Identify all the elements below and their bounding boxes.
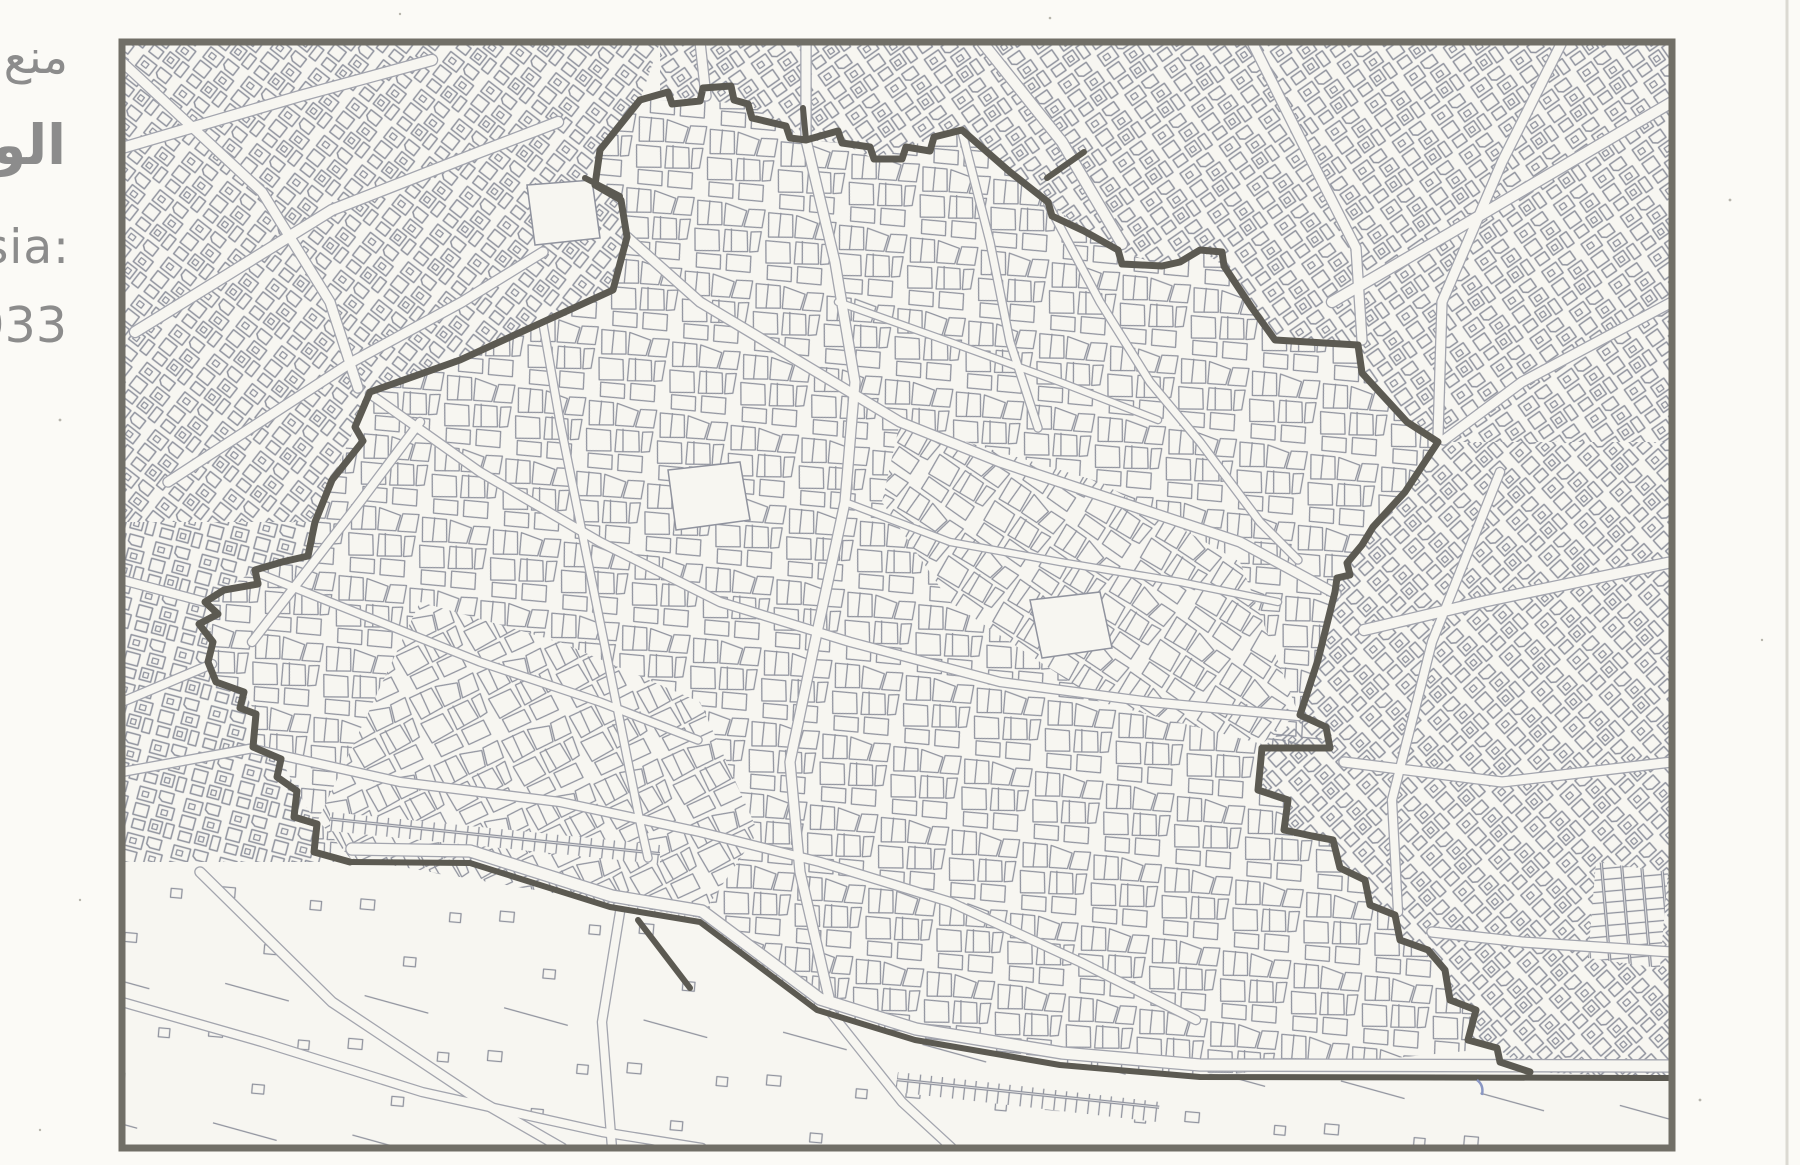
caption-year-fragment: 933 xyxy=(0,301,67,350)
caption-arabic-line-1: منع xyxy=(0,34,68,81)
rampart-gate-stub-north xyxy=(803,108,806,140)
slide-scan xyxy=(0,0,1800,1165)
large-parcel-east xyxy=(1030,592,1112,658)
caption-arabic-line-2: الوص xyxy=(0,118,66,173)
map-figure xyxy=(0,0,1800,1165)
large-parcel-center xyxy=(668,462,750,530)
caption-latin-fragment: sia: xyxy=(0,224,70,271)
large-parcel-northwest xyxy=(527,180,600,245)
